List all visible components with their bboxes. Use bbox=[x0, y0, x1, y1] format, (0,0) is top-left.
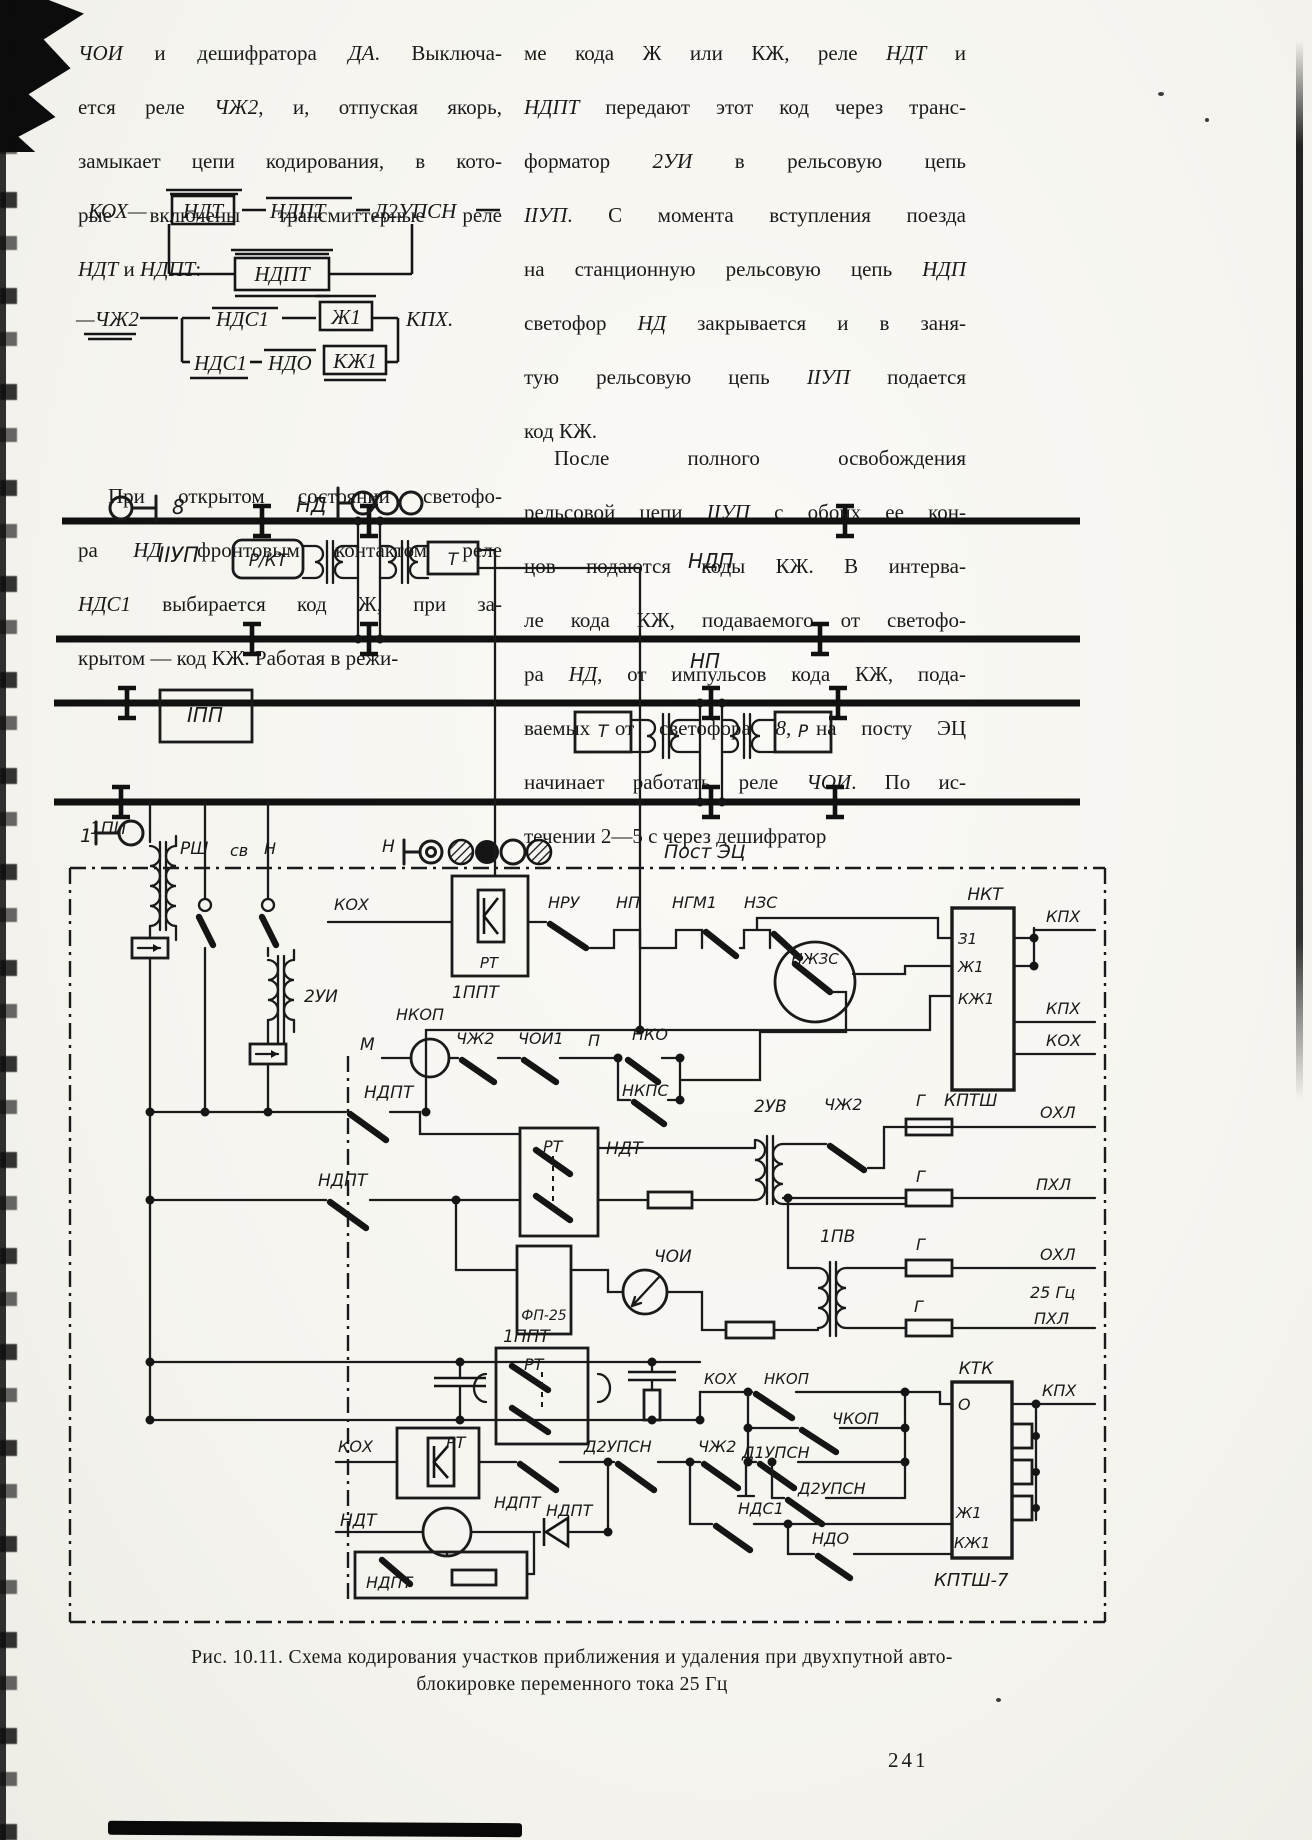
wire-oxl2-label: ОХЛ bbox=[1040, 1245, 1076, 1264]
signal-nd-name: НД bbox=[296, 493, 327, 517]
contact-ndpt2-label: НДПТ bbox=[318, 1171, 369, 1191]
terminal-zh1b-label: Ж1 bbox=[955, 1504, 982, 1522]
rail-lines bbox=[54, 521, 1080, 802]
terminal-kzh1-label: КЖ1 bbox=[958, 990, 994, 1008]
contact-d2upsn1-label: Д2УПСН bbox=[583, 1437, 652, 1456]
box-1ppt2-label: 1ППТ bbox=[503, 1327, 551, 1347]
contact-nkps-label: НКПС bbox=[622, 1081, 669, 1100]
coding-scheme-diagram: 8НДIIУПР/КТТНДПIППТРНП1РШсвННПост ЭЦ1ПИ2… bbox=[0, 0, 1312, 1840]
insulated-joint-icons bbox=[112, 506, 854, 817]
scanned-book-page: { "page": {"number": "241"}, "caption": … bbox=[0, 0, 1312, 1840]
wire-ndt-label: НДТ bbox=[606, 1139, 644, 1159]
caption-line-2: блокировке переменного тока 25 Гц bbox=[62, 1671, 1082, 1698]
filter-fp25-label: ФП-25 bbox=[521, 1308, 567, 1324]
wire-pxl2-label: ПХЛ bbox=[1034, 1309, 1069, 1328]
block-kptsh-label: КПТШ bbox=[944, 1091, 997, 1111]
transformer-2ui-label: 2УИ bbox=[304, 987, 338, 1007]
wire-pxl1-label: ПХЛ bbox=[1036, 1175, 1071, 1194]
diagram-labels: 8НДIIУПР/КТТНДПIППТРНП1РШсвННПост ЭЦ1ПИ2… bbox=[80, 493, 1082, 1592]
coding-row-buses bbox=[146, 1348, 749, 1444]
label-25hz: 25 Гц bbox=[1030, 1283, 1075, 1302]
contact-ngm1-label: НГМ1 bbox=[672, 893, 717, 912]
relay-ndt2-label: НДТ bbox=[340, 1511, 378, 1531]
contact-np-label: НП bbox=[616, 893, 640, 912]
track-feed-wires bbox=[478, 550, 645, 1035]
fuse-g4-label: Г bbox=[914, 1297, 924, 1316]
contact-d2upsn2-label: Д2УПСН bbox=[797, 1479, 866, 1498]
wire-kox-label: КОХ bbox=[334, 895, 370, 914]
terminal-z1-label: З1 bbox=[958, 930, 977, 948]
terminal-o-label: О bbox=[958, 1395, 971, 1414]
block-kptsh7-label: КПТШ-7 bbox=[934, 1570, 1009, 1591]
track-1pp-label: IПП bbox=[187, 703, 223, 727]
contact-d1upsn-label: Д1УПСН bbox=[741, 1443, 810, 1462]
contact-nkop2-label: НКОП bbox=[764, 1370, 809, 1388]
relay-choi-label: ЧОИ bbox=[654, 1247, 692, 1267]
signal-8-number: 8 bbox=[172, 495, 185, 519]
coding-row-ndpt bbox=[146, 1108, 1096, 1237]
block-ktk-label: КТК bbox=[959, 1359, 994, 1379]
contact-chzh2-label: ЧЖ2 bbox=[456, 1029, 494, 1048]
box-rt4-label: РТ bbox=[446, 1433, 467, 1452]
contact-ndpt4-label: НДПТ bbox=[546, 1501, 594, 1520]
cable-sv-label: св bbox=[230, 841, 248, 860]
contact-ndo-label: НДО bbox=[812, 1529, 849, 1548]
box-rkt-label: Р/КТ bbox=[249, 551, 289, 571]
transformer-1pi-label: 1ПИ bbox=[90, 819, 127, 839]
signal-nd-icon bbox=[338, 488, 422, 518]
box-r1-label: Р bbox=[798, 722, 809, 742]
track-ndp-label: НДП bbox=[688, 549, 734, 573]
signal-n-name: Н bbox=[382, 837, 395, 857]
box-rt-label: РТ bbox=[480, 954, 500, 972]
cable-n-label: Н bbox=[264, 839, 276, 858]
terminal-p-label: П bbox=[588, 1031, 600, 1050]
contact-chzh2c-label: ЧЖ2 bbox=[698, 1437, 736, 1456]
box-rt2-label: РТ bbox=[543, 1137, 564, 1156]
caption-line-1: Рис. 10.11. Схема кодирования участков п… bbox=[62, 1644, 1082, 1671]
wire-kpx2-label: КПХ bbox=[1046, 999, 1081, 1018]
block-nkt-label: НКТ bbox=[967, 885, 1004, 905]
track-2up-label: IIУП bbox=[158, 543, 199, 567]
signal-8-icon bbox=[110, 496, 156, 520]
contact-nzs-label: НЗС bbox=[744, 893, 778, 912]
wire-kpx3-label: КПХ bbox=[1042, 1381, 1077, 1400]
contact-chkop-label: ЧКОП bbox=[832, 1409, 879, 1428]
relay-nzhzs-label: НЖЗС bbox=[791, 950, 839, 968]
post-ec-label: Пост ЭЦ bbox=[664, 841, 746, 863]
terminal-zh1-label: Ж1 bbox=[957, 958, 984, 976]
fuse-g2-label: Г bbox=[916, 1167, 926, 1186]
relay-nkop-label: НКОП bbox=[396, 1005, 444, 1024]
terminal-kzh1b-label: КЖ1 bbox=[954, 1534, 990, 1552]
wire-kpx1-label: КПХ bbox=[1046, 907, 1081, 926]
ktk-ladder bbox=[690, 1382, 1095, 1578]
box-ndpt5-label: НДПТ bbox=[366, 1573, 414, 1592]
wire-kox2-label: КОХ bbox=[1046, 1031, 1082, 1050]
wire-oxl1-label: ОХЛ bbox=[1040, 1103, 1076, 1122]
terminal-m-label: М bbox=[360, 1035, 375, 1055]
track1-transformer-icon bbox=[575, 699, 831, 807]
transformer-1pv-label: 1ПВ bbox=[820, 1227, 855, 1247]
fuse-g1-label: Г bbox=[916, 1091, 926, 1110]
contact-choi1-label: ЧОИ1 bbox=[518, 1029, 564, 1048]
contact-ndpt1-label: НДПТ bbox=[364, 1083, 415, 1103]
contact-chzh2b-label: ЧЖ2 bbox=[824, 1095, 862, 1114]
track-np-label: НП bbox=[690, 649, 720, 673]
box-1ppt-label: 1ППТ bbox=[452, 983, 500, 1003]
box-t2-label: Т bbox=[448, 550, 460, 570]
box-rt3-label: РТ bbox=[524, 1355, 545, 1374]
fuse-g3-label: Г bbox=[916, 1235, 926, 1254]
signal-n-icon bbox=[404, 840, 551, 864]
wire-kox4-label: КОХ bbox=[704, 1370, 737, 1388]
contact-ndpt3-label: НДПТ bbox=[494, 1493, 542, 1512]
figure-caption: Рис. 10.11. Схема кодирования участков п… bbox=[62, 1644, 1082, 1698]
cable-rsh-label: РШ bbox=[180, 839, 208, 859]
contact-nko-label: НКО bbox=[632, 1025, 668, 1044]
box-t1-label: Т bbox=[598, 722, 610, 742]
transformer-1pi-icon bbox=[132, 836, 176, 1420]
wire-kox3-label: КОХ bbox=[338, 1437, 374, 1456]
transformer-2ui-icon bbox=[250, 950, 294, 1117]
contact-nru-label: НРУ bbox=[548, 893, 581, 912]
transformer-2uv-label: 2УВ bbox=[754, 1097, 787, 1117]
contact-nds1-label: НДС1 bbox=[738, 1499, 784, 1518]
page-number: 241 bbox=[888, 1748, 929, 1773]
